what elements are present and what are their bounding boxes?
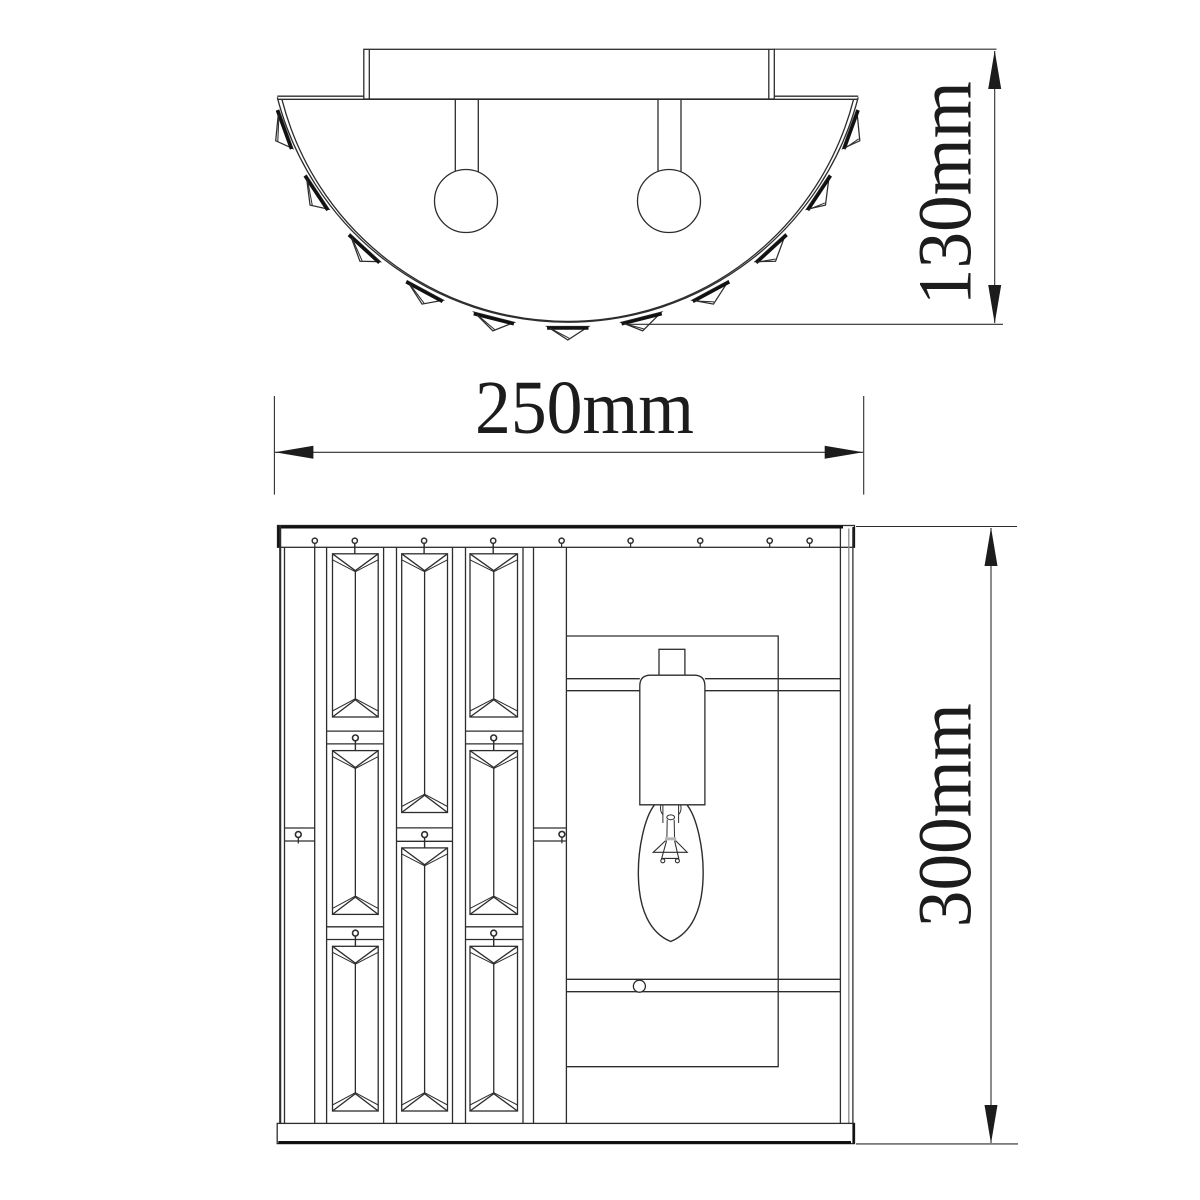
svg-text:250mm: 250mm — [475, 366, 694, 450]
svg-text:130mm: 130mm — [904, 81, 988, 305]
svg-text:300mm: 300mm — [904, 703, 988, 927]
